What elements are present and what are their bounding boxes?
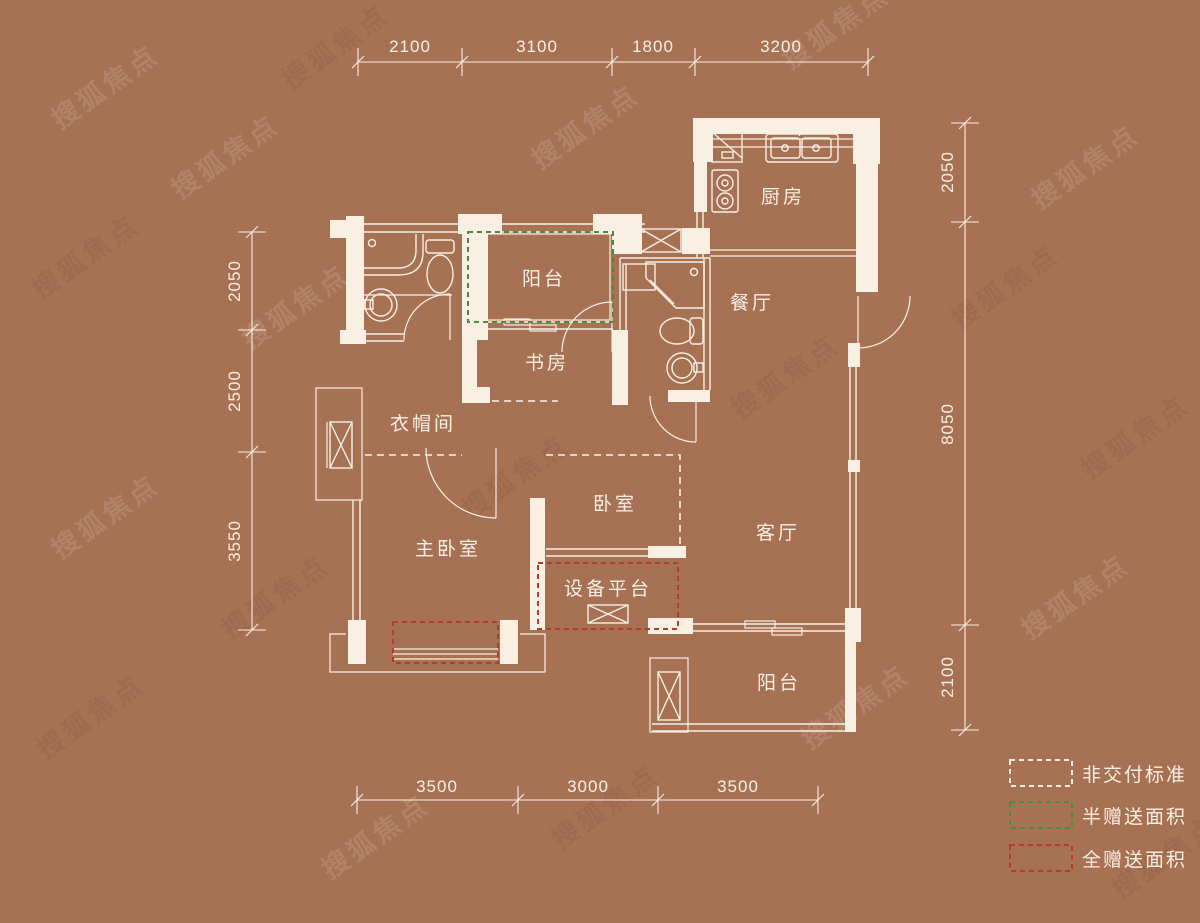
watermark-text: 搜狐焦点	[1026, 118, 1145, 215]
room-labels: 厨房 阳台 餐厅 书房 衣帽间 主卧室 卧室 设备平台 客厅 阳台	[390, 186, 805, 694]
dim-bottom-3: 3500	[717, 777, 759, 796]
room-label-equipment-platform: 设备平台	[564, 578, 652, 600]
wash-basin-icon	[364, 289, 397, 321]
watermark-text: 搜狐焦点	[1076, 388, 1195, 485]
room-label-master-bedroom: 主卧室	[415, 538, 481, 560]
watermark-text: 搜狐焦点	[236, 258, 355, 355]
watermark-text: 搜狐焦点	[456, 428, 575, 525]
cabinet-icon	[623, 264, 655, 290]
dim-right-2: 8050	[938, 403, 957, 445]
watermark-text: 搜狐焦点	[526, 78, 645, 175]
door-arc	[404, 294, 450, 340]
toilet-icon	[660, 318, 703, 344]
legend-label-half-gift: 半赠送面积	[1082, 806, 1187, 828]
watermark-text: 搜狐焦点	[166, 108, 285, 205]
door-arc	[562, 302, 612, 352]
room-label-kitchen: 厨房	[761, 186, 805, 208]
watermark-text: 搜狐焦点	[46, 38, 165, 135]
dim-left-3: 3550	[225, 520, 244, 562]
legend-label-non-delivery: 非交付标准	[1082, 764, 1187, 786]
duct-icon	[658, 672, 680, 720]
dim-right-1: 2050	[938, 151, 957, 193]
door-arc	[650, 396, 696, 442]
watermark-text: 搜狐焦点	[31, 668, 150, 765]
room-label-dining: 餐厅	[730, 292, 774, 314]
legend-swatch-non-delivery	[1010, 760, 1072, 786]
dim-bottom-2: 3000	[567, 777, 609, 796]
watermark-text: 搜狐焦点	[276, 0, 395, 95]
wash-basin-icon	[667, 353, 703, 383]
dim-top-3: 1800	[632, 37, 674, 56]
stove-icon	[712, 170, 738, 212]
watermark-text: 搜狐焦点	[1016, 548, 1135, 645]
watermark-text: 搜狐焦点	[946, 238, 1065, 335]
watermark-layer: 搜狐焦点搜狐焦点搜狐焦点搜狐焦点搜狐焦点搜狐焦点搜狐焦点搜狐焦点搜狐焦点搜狐焦点…	[26, 0, 1200, 905]
room-label-cloakroom: 衣帽间	[390, 413, 456, 435]
dim-top-2: 3100	[516, 37, 558, 56]
room-label-balcony-top: 阳台	[522, 268, 566, 290]
watermark-text: 搜狐焦点	[726, 328, 845, 425]
room-label-study: 书房	[525, 352, 569, 374]
kitchen-sink-icon	[766, 129, 838, 162]
legend: 非交付标准 半赠送面积 全赠送面积	[1010, 760, 1187, 871]
watermark-text: 搜狐焦点	[316, 788, 435, 885]
shower-icon	[364, 234, 423, 275]
watermark-text: 搜狐焦点	[26, 208, 145, 305]
toilet-icon	[426, 240, 454, 293]
dim-top-1: 2100	[389, 37, 431, 56]
watermark-text: 搜狐焦点	[546, 758, 665, 855]
floor-plan: 搜狐焦点搜狐焦点搜狐焦点搜狐焦点搜狐焦点搜狐焦点搜狐焦点搜狐焦点搜狐焦点搜狐焦点…	[0, 0, 1200, 923]
full-gift-area-baywindow	[393, 622, 498, 663]
duct-icon	[641, 229, 681, 252]
dim-top-4: 3200	[760, 37, 802, 56]
dim-bottom-1: 3500	[416, 777, 458, 796]
dimension-right: 2050 8050 2100	[938, 117, 979, 736]
room-label-bedroom: 卧室	[593, 493, 637, 515]
legend-label-full-gift: 全赠送面积	[1082, 849, 1187, 871]
thin-walls	[316, 139, 856, 732]
duct-icon	[330, 422, 352, 468]
dim-right-3: 2100	[938, 656, 957, 698]
dim-left-2: 2500	[225, 370, 244, 412]
legend-swatch-full-gift	[1010, 845, 1072, 871]
watermark-text: 搜狐焦点	[46, 468, 165, 565]
legend-swatch-half-gift	[1010, 802, 1072, 828]
entry-door-arc	[858, 296, 910, 348]
equipment-icon	[588, 605, 628, 623]
dimension-left: 2050 2500 3550	[225, 226, 266, 636]
dim-left-1: 2050	[225, 260, 244, 302]
room-label-balcony-bottom: 阳台	[757, 672, 801, 694]
room-label-living-room: 客厅	[756, 522, 800, 544]
